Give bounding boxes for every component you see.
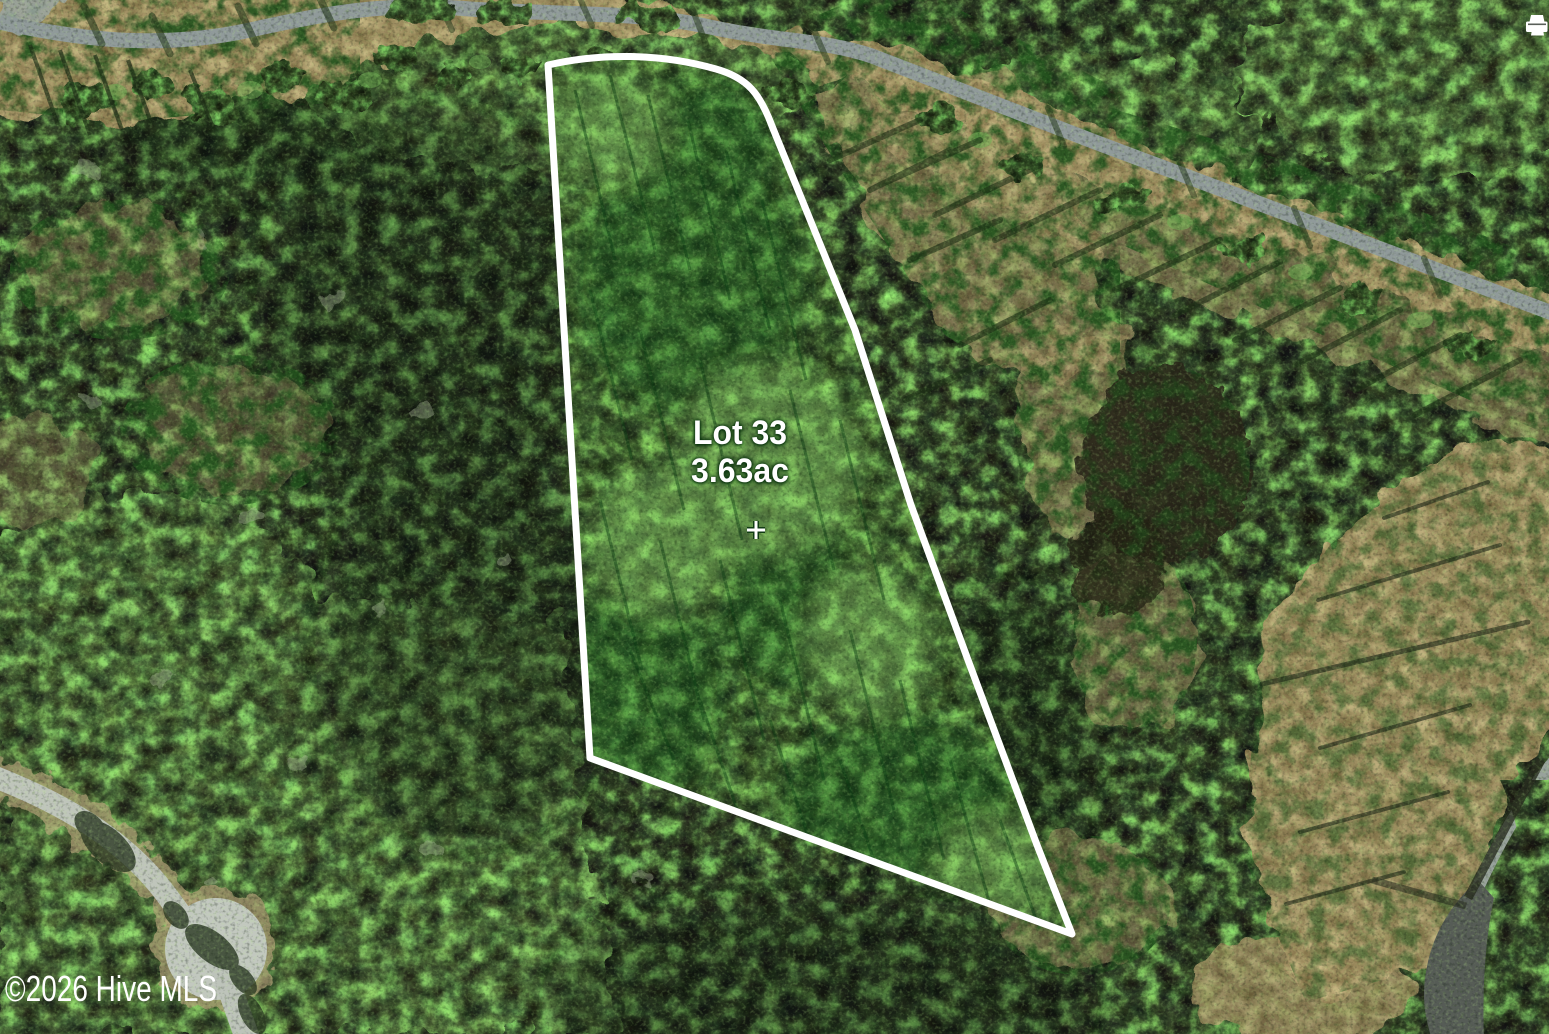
svg-text:Lot 33: Lot 33: [693, 414, 787, 452]
svg-text:3.63ac: 3.63ac: [691, 452, 789, 490]
svg-text:©2026 Hive MLS: ©2026 Hive MLS: [5, 968, 217, 1009]
